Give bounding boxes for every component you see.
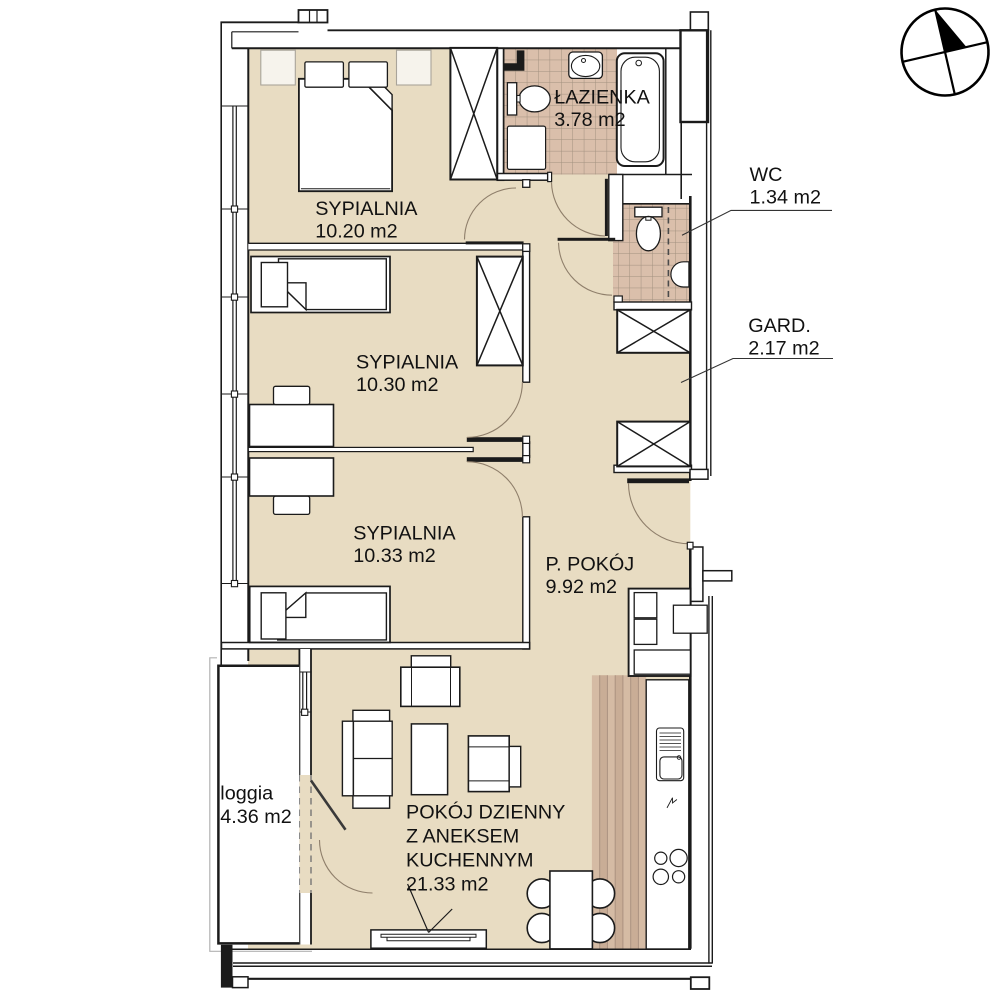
svg-text:SYPIALNIA: SYPIALNIA — [356, 352, 459, 374]
svg-text:KUCHENNYM: KUCHENNYM — [406, 850, 534, 872]
svg-text:3.78 m2: 3.78 m2 — [554, 109, 625, 131]
svg-text:4.36 m2: 4.36 m2 — [220, 806, 291, 828]
svg-text:21.33 m2: 21.33 m2 — [406, 874, 488, 896]
svg-text:loggia: loggia — [220, 783, 273, 805]
svg-text:10.20 m2: 10.20 m2 — [315, 221, 397, 243]
svg-text:2.17 m2: 2.17 m2 — [748, 338, 819, 360]
svg-text:9.92 m2: 9.92 m2 — [546, 576, 617, 598]
svg-text:POKÓJ DZIENNY: POKÓJ DZIENNY — [406, 801, 565, 824]
svg-text:10.30 m2: 10.30 m2 — [356, 374, 438, 396]
svg-text:1.34 m2: 1.34 m2 — [750, 187, 821, 209]
svg-text:GARD.: GARD. — [748, 315, 811, 337]
svg-text:10.33 m2: 10.33 m2 — [353, 545, 435, 567]
svg-text:WC: WC — [750, 164, 783, 186]
svg-text:ŁAZIENKA: ŁAZIENKA — [554, 87, 650, 109]
svg-text:P. POKÓJ: P. POKÓJ — [546, 553, 635, 576]
svg-text:SYPIALNIA: SYPIALNIA — [353, 523, 456, 545]
svg-text:Z ANEKSEM: Z ANEKSEM — [406, 826, 519, 848]
svg-text:SYPIALNIA: SYPIALNIA — [315, 198, 418, 220]
